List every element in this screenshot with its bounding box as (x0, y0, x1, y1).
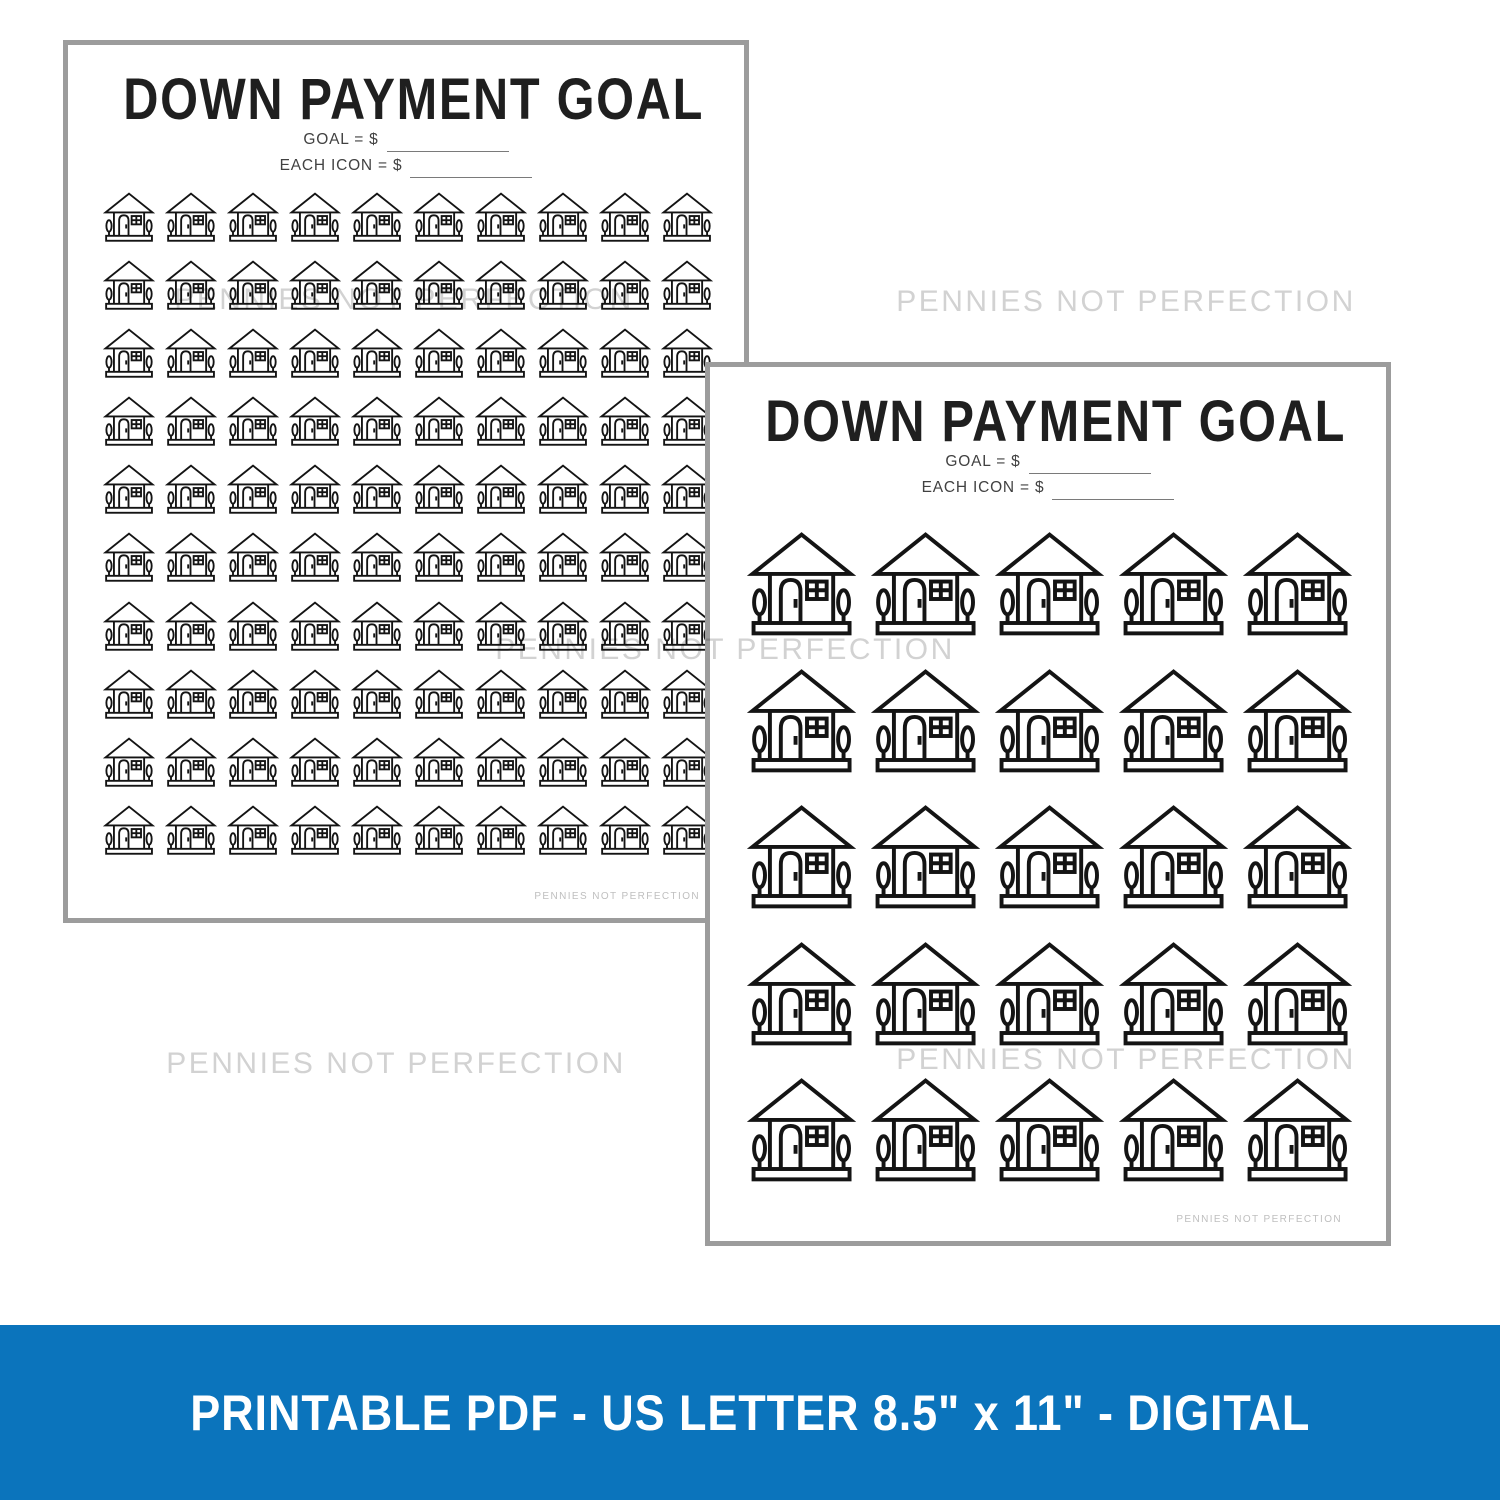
house-icon (227, 803, 279, 858)
house-icon (537, 667, 589, 722)
house-icon (165, 735, 217, 790)
house-icon (289, 735, 341, 790)
house-icon (351, 530, 403, 585)
grid-cell (98, 524, 160, 592)
grid-cell (408, 319, 470, 387)
grid-cell (470, 388, 532, 456)
house-icon (661, 190, 713, 245)
grid-cell (98, 729, 160, 797)
house-grid (740, 517, 1360, 1199)
grid-cell (284, 797, 346, 865)
grid-cell (470, 319, 532, 387)
house-icon (599, 190, 651, 245)
grid-cell (470, 456, 532, 524)
house-icon (599, 530, 651, 585)
watermark-text: PENNIES NOT PERFECTION (495, 633, 955, 667)
goal-blank-line (1029, 460, 1151, 474)
grid-cell (532, 319, 594, 387)
house-icon (537, 326, 589, 381)
house-icon (351, 462, 403, 517)
house-icon (165, 462, 217, 517)
grid-cell (532, 524, 594, 592)
house-icon (537, 462, 589, 517)
house-icon (995, 800, 1104, 916)
house-icon (165, 326, 217, 381)
house-icon (227, 462, 279, 517)
house-icon (1243, 1073, 1352, 1189)
house-icon (475, 803, 527, 858)
grid-cell (222, 456, 284, 524)
house-icon (871, 527, 980, 643)
house-icon (103, 190, 155, 245)
house-icon (227, 190, 279, 245)
grid-cell (346, 183, 408, 251)
house-icon (599, 735, 651, 790)
grid-cell (864, 653, 988, 789)
house-icon (227, 530, 279, 585)
grid-cell (408, 388, 470, 456)
house-icon (351, 326, 403, 381)
page-title-text: DOWN PAYMENT GOAL (123, 75, 704, 125)
goal-label: GOAL = $ (945, 453, 1020, 470)
grid-cell (160, 524, 222, 592)
house-icon (599, 394, 651, 449)
goal-label: GOAL = $ (303, 131, 378, 148)
house-icon (871, 937, 980, 1053)
goal-blank-line (387, 138, 509, 152)
grid-cell (222, 729, 284, 797)
house-icon (103, 258, 155, 313)
house-icon (995, 664, 1104, 780)
grid-cell (346, 729, 408, 797)
house-icon (289, 667, 341, 722)
house-icon (289, 803, 341, 858)
grid-cell (98, 456, 160, 524)
house-icon (661, 258, 713, 313)
house-icon (103, 326, 155, 381)
grid-cell (594, 319, 656, 387)
house-icon (227, 735, 279, 790)
house-icon (413, 394, 465, 449)
each-icon-row: EACH ICON = $ (68, 157, 744, 174)
house-icon (413, 735, 465, 790)
grid-cell (98, 660, 160, 728)
house-icon (599, 803, 651, 858)
grid-cell (594, 388, 656, 456)
grid-cell (408, 592, 470, 660)
grid-cell (1112, 790, 1236, 926)
grid-cell (532, 456, 594, 524)
grid-cell (988, 517, 1112, 653)
house-icon (475, 735, 527, 790)
watermark-text: PENNIES NOT PERFECTION (896, 285, 1356, 319)
house-icon (413, 667, 465, 722)
grid-cell (284, 524, 346, 592)
house-icon (537, 190, 589, 245)
grid-cell (864, 790, 988, 926)
house-icon (413, 190, 465, 245)
each-icon-row: EACH ICON = $ (710, 479, 1386, 496)
house-icon (165, 530, 217, 585)
house-icon (413, 530, 465, 585)
grid-cell (98, 183, 160, 251)
footer-credit: PENNIES NOT PERFECTION (1176, 1214, 1342, 1225)
house-icon (1119, 937, 1228, 1053)
grid-cell (346, 456, 408, 524)
grid-cell (740, 926, 864, 1062)
grid-cell (98, 797, 160, 865)
house-icon (103, 735, 155, 790)
house-icon (289, 462, 341, 517)
house-icon (165, 190, 217, 245)
house-icon (1243, 937, 1352, 1053)
grid-cell (1112, 1063, 1236, 1199)
grid-cell (98, 592, 160, 660)
house-icon (103, 599, 155, 654)
grid-cell (864, 1063, 988, 1199)
grid-cell (98, 251, 160, 319)
house-icon (413, 599, 465, 654)
each-icon-blank-line (410, 164, 532, 178)
house-icon (475, 530, 527, 585)
house-icon (537, 735, 589, 790)
house-icon (351, 735, 403, 790)
house-icon (1243, 800, 1352, 916)
grid-cell (346, 660, 408, 728)
grid-cell (222, 797, 284, 865)
house-icon (871, 664, 980, 780)
house-icon (871, 800, 980, 916)
house-icon (165, 394, 217, 449)
house-icon (475, 462, 527, 517)
house-icon (413, 803, 465, 858)
grid-cell (160, 797, 222, 865)
grid-cell (408, 183, 470, 251)
house-icon (537, 394, 589, 449)
house-icon (351, 190, 403, 245)
watermark-text: PENNIES NOT PERFECTION (896, 1043, 1356, 1077)
grid-cell (470, 183, 532, 251)
grid-cell (1236, 790, 1360, 926)
grid-cell (222, 592, 284, 660)
grid-cell (532, 388, 594, 456)
grid-cell (222, 524, 284, 592)
grid-cell (346, 319, 408, 387)
grid-cell (98, 388, 160, 456)
watermark-text: PENNIES NOT PERFECTION (174, 283, 634, 317)
grid-cell (988, 1063, 1112, 1199)
house-icon (1119, 1073, 1228, 1189)
house-icon (1119, 800, 1228, 916)
house-icon (995, 937, 1104, 1053)
house-icon (747, 937, 856, 1053)
grid-cell (408, 729, 470, 797)
house-icon (289, 394, 341, 449)
grid-cell (408, 524, 470, 592)
house-icon (1119, 527, 1228, 643)
house-icon (351, 599, 403, 654)
grid-cell (1112, 517, 1236, 653)
grid-cell (222, 183, 284, 251)
house-icon (165, 803, 217, 858)
grid-cell (532, 183, 594, 251)
grid-cell (532, 797, 594, 865)
house-icon (351, 394, 403, 449)
house-icon (1119, 664, 1228, 780)
grid-cell (346, 592, 408, 660)
grid-cell (594, 183, 656, 251)
house-icon (413, 326, 465, 381)
house-icon (1243, 664, 1352, 780)
house-icon (475, 326, 527, 381)
grid-cell (222, 660, 284, 728)
house-icon (351, 667, 403, 722)
house-icon (537, 803, 589, 858)
house-icon (103, 803, 155, 858)
goal-row: GOAL = $ (710, 453, 1386, 470)
house-icon (289, 326, 341, 381)
house-icon (227, 667, 279, 722)
house-icon (475, 394, 527, 449)
house-icon (227, 326, 279, 381)
house-icon (165, 599, 217, 654)
grid-cell (594, 729, 656, 797)
house-icon (289, 190, 341, 245)
grid-cell (284, 319, 346, 387)
grid-cell (532, 660, 594, 728)
grid-cell (222, 319, 284, 387)
footer-credit: PENNIES NOT PERFECTION (534, 891, 700, 902)
goal-row: GOAL = $ (68, 131, 744, 148)
grid-cell (988, 790, 1112, 926)
grid-cell (740, 790, 864, 926)
grid-cell (160, 183, 222, 251)
grid-cell (346, 797, 408, 865)
grid-cell (160, 388, 222, 456)
house-icon (289, 599, 341, 654)
printable-page-front: DOWN PAYMENT GOAL GOAL = $ EACH ICON = $… (705, 362, 1391, 1246)
grid-cell (346, 524, 408, 592)
grid-cell (284, 660, 346, 728)
banner-text: PRINTABLE PDF - US LETTER 8.5" x 11" - D… (190, 1384, 1310, 1442)
house-icon (599, 667, 651, 722)
grid-cell (470, 660, 532, 728)
house-icon (165, 667, 217, 722)
house-icon (103, 530, 155, 585)
page-title-text: DOWN PAYMENT GOAL (765, 397, 1346, 447)
house-icon (537, 530, 589, 585)
each-icon-label: EACH ICON = $ (280, 157, 403, 174)
grid-cell (470, 729, 532, 797)
grid-cell (532, 729, 594, 797)
product-info-banner: PRINTABLE PDF - US LETTER 8.5" x 11" - D… (0, 1325, 1500, 1500)
grid-cell (594, 456, 656, 524)
grid-cell (284, 183, 346, 251)
grid-cell (594, 660, 656, 728)
grid-cell (160, 660, 222, 728)
house-icon (1243, 527, 1352, 643)
house-icon (747, 1073, 856, 1189)
grid-cell (284, 592, 346, 660)
grid-cell (470, 797, 532, 865)
grid-cell (408, 660, 470, 728)
grid-cell (594, 524, 656, 592)
grid-cell (408, 456, 470, 524)
house-icon (289, 530, 341, 585)
grid-cell (160, 319, 222, 387)
house-icon (871, 1073, 980, 1189)
house-icon (413, 462, 465, 517)
grid-cell (656, 251, 718, 319)
grid-cell (1236, 517, 1360, 653)
grid-cell (346, 388, 408, 456)
grid-cell (470, 524, 532, 592)
grid-cell (408, 797, 470, 865)
grid-cell (160, 729, 222, 797)
house-icon (103, 394, 155, 449)
grid-cell (284, 456, 346, 524)
grid-cell (160, 592, 222, 660)
house-icon (475, 190, 527, 245)
house-icon (227, 599, 279, 654)
grid-cell (284, 729, 346, 797)
house-icon (747, 664, 856, 780)
grid-cell (740, 1063, 864, 1199)
grid-cell (98, 319, 160, 387)
house-icon (995, 527, 1104, 643)
house-icon (599, 326, 651, 381)
watermark-text: PENNIES NOT PERFECTION (166, 1047, 626, 1081)
house-icon (103, 667, 155, 722)
house-icon (747, 800, 856, 916)
house-icon (995, 1073, 1104, 1189)
house-icon (747, 527, 856, 643)
page-title: DOWN PAYMENT GOAL (68, 75, 744, 125)
grid-cell (594, 797, 656, 865)
grid-cell (740, 653, 864, 789)
house-icon (103, 462, 155, 517)
grid-cell (1236, 653, 1360, 789)
house-icon (227, 394, 279, 449)
grid-cell (656, 183, 718, 251)
printable-page-back: DOWN PAYMENT GOAL GOAL = $ EACH ICON = $… (63, 40, 749, 923)
each-icon-blank-line (1052, 486, 1174, 500)
grid-cell (222, 388, 284, 456)
house-icon (599, 462, 651, 517)
grid-cell (988, 653, 1112, 789)
grid-cell (1112, 653, 1236, 789)
grid-cell (160, 456, 222, 524)
page-title: DOWN PAYMENT GOAL (710, 397, 1386, 447)
house-icon (475, 667, 527, 722)
grid-cell (1236, 1063, 1360, 1199)
each-icon-label: EACH ICON = $ (922, 479, 1045, 496)
grid-cell (284, 388, 346, 456)
house-icon (351, 803, 403, 858)
